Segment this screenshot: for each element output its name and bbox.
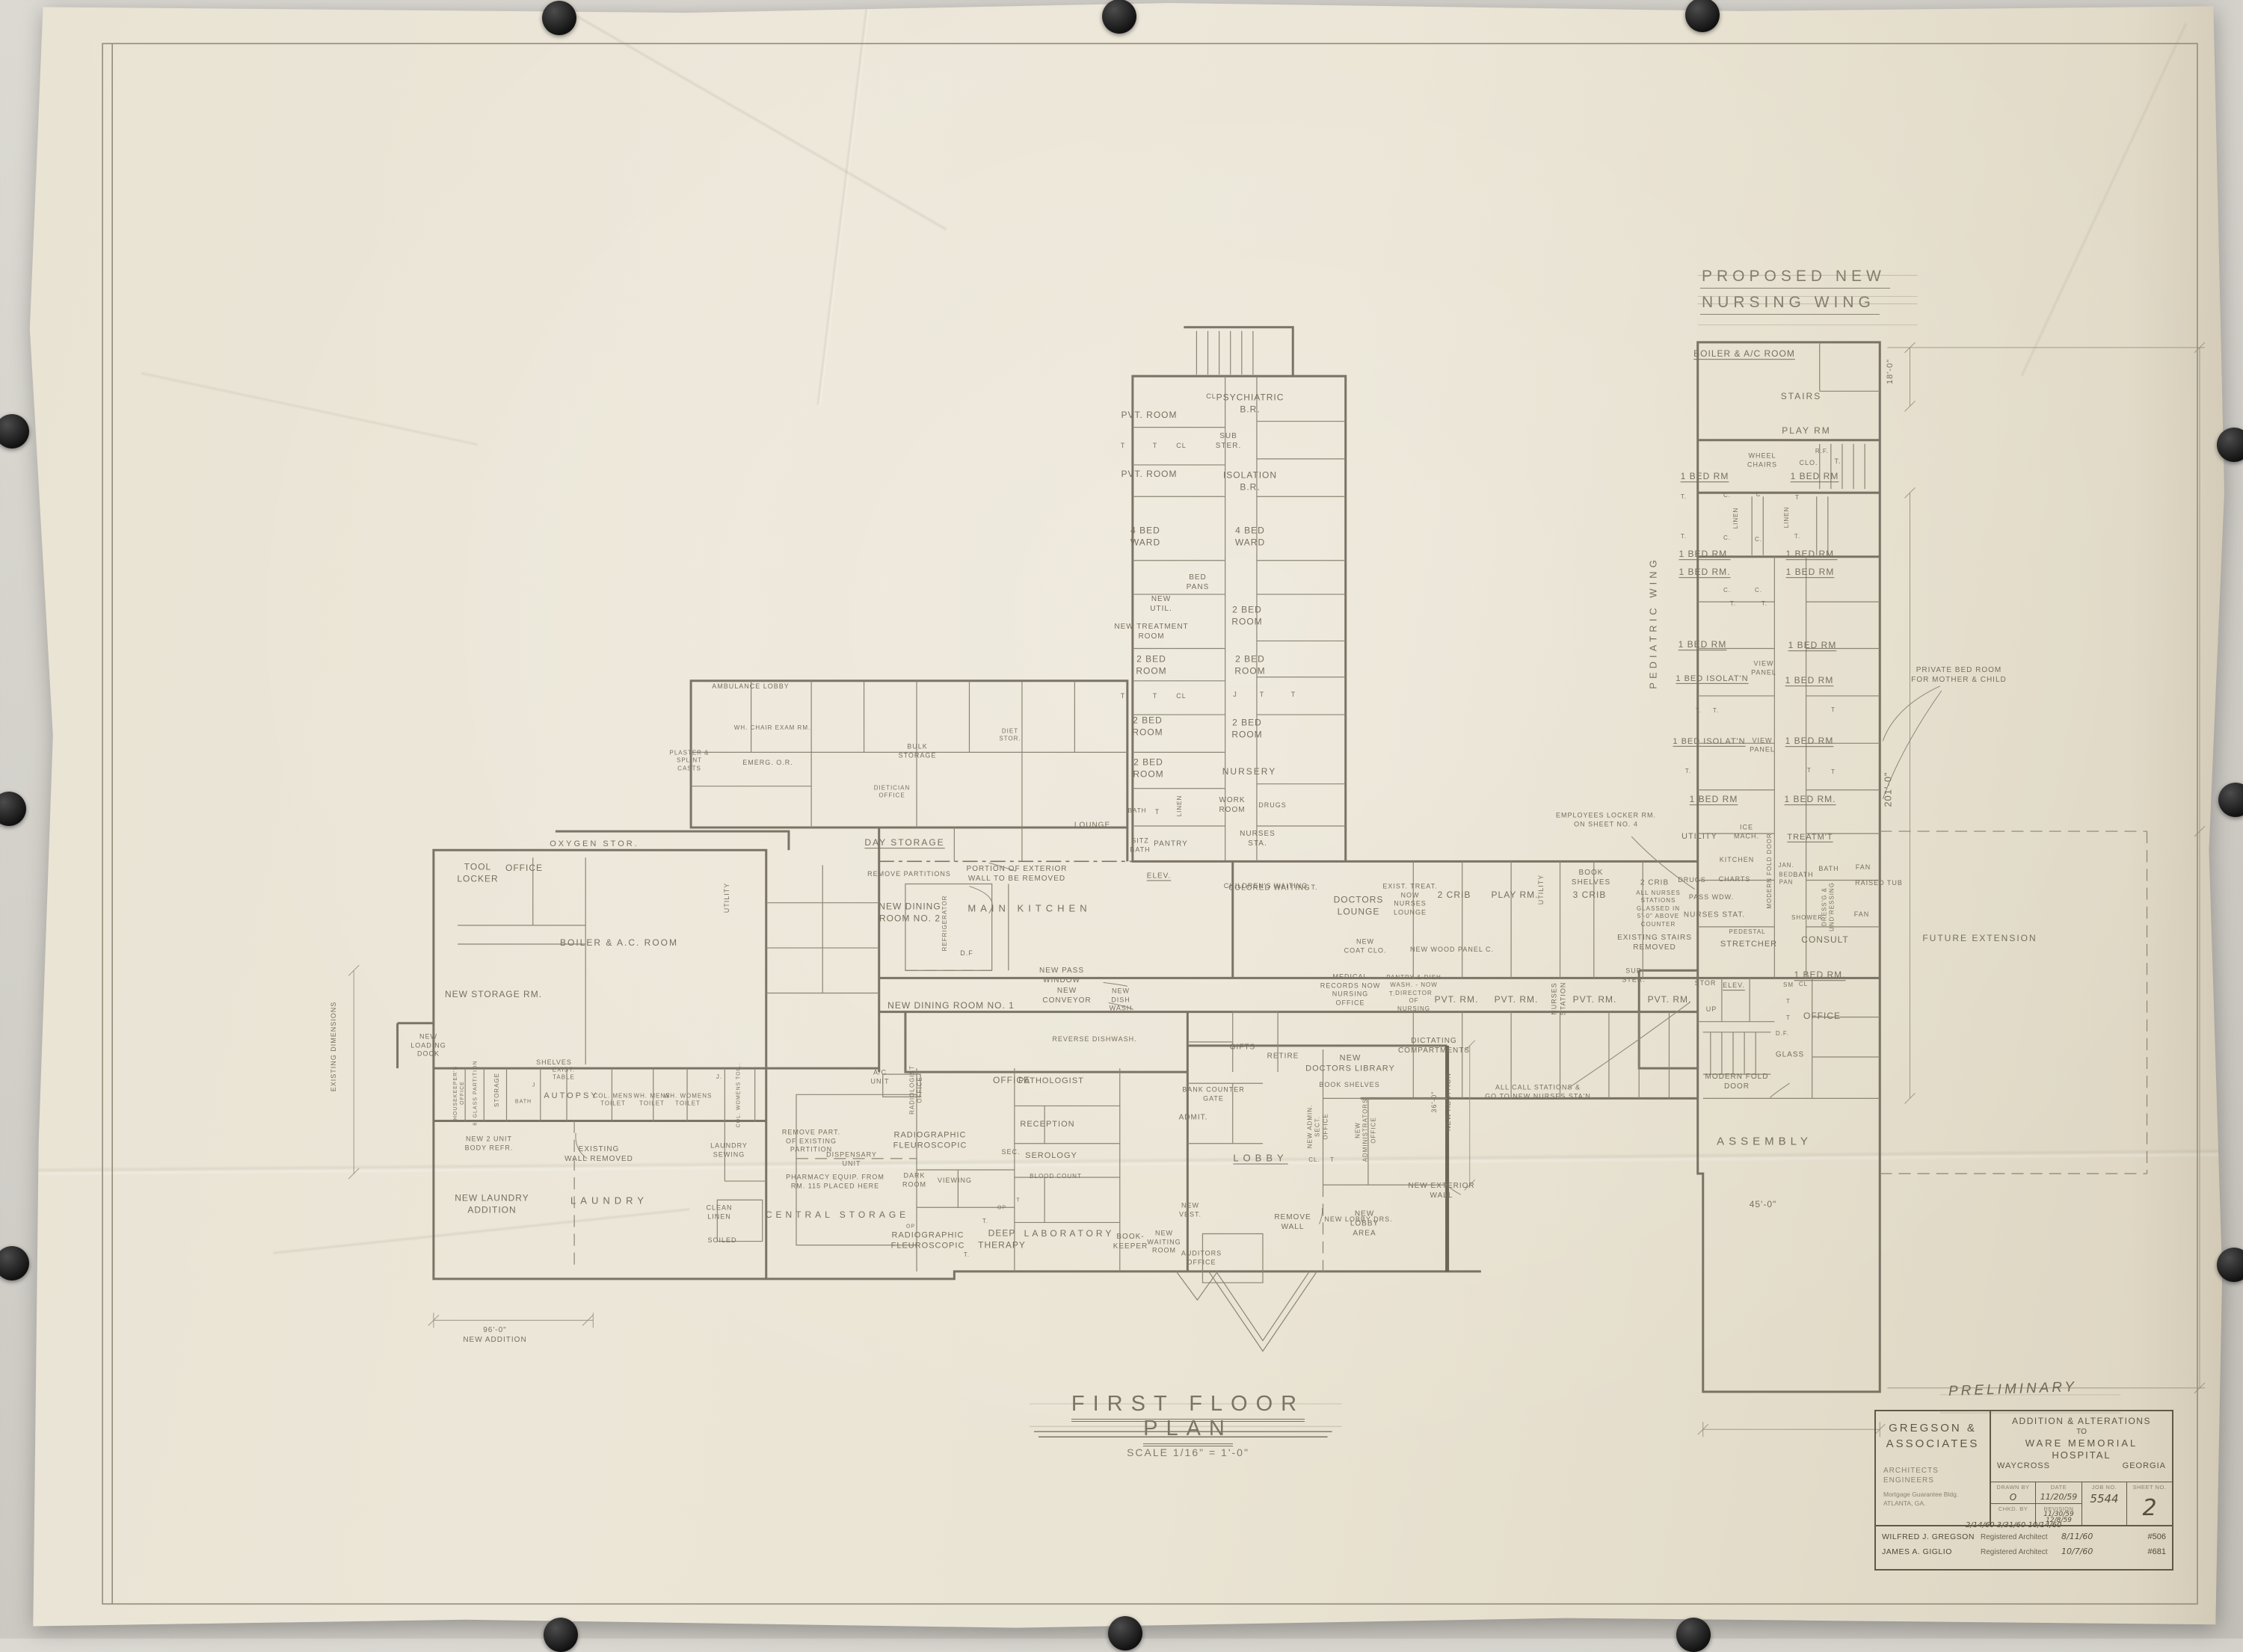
title-block: GREGSON & ASSOCIATES ARCHITECTS ENGINEER… — [1874, 1410, 2173, 1571]
wing-title: PROPOSED NEW NURSING WING — [1700, 266, 1890, 315]
room-label: T — [1121, 692, 1126, 701]
room-label: NEW ADMINISTRATORS OFFICE — [1354, 1099, 1377, 1162]
room-label: MAIN KITCHEN — [967, 903, 1091, 916]
room-label: T — [1121, 442, 1126, 451]
room-label: BULK STORAGE — [899, 742, 937, 759]
room-label: HOUSEKEEPER'S OFFICE — [452, 1066, 466, 1120]
room-label: 1 BED RM — [1785, 675, 1834, 687]
room-label: BATH — [1793, 871, 1813, 880]
architects-strip: 2/14/60 3/31/60 10/14/60 WILFRED J. GREG… — [1876, 1525, 2172, 1571]
room-label: WH. CHAIR EXAM RM. — [734, 724, 810, 732]
room-label: 1 BED RM — [1681, 471, 1729, 483]
annotation: NEW 2 UNIT BODY REFR. — [465, 1135, 514, 1152]
room-label: T. — [1834, 457, 1841, 466]
annotation: REMOVE PARTITIONS — [867, 870, 951, 879]
drawing-title-text: FIRST FLOOR PLAN — [1071, 1392, 1305, 1446]
annotation: REVERSE DISHWASH. — [1052, 1035, 1136, 1044]
room-label: CENTRAL STORAGE — [766, 1209, 909, 1221]
room-label: T — [1260, 691, 1265, 700]
room-label: CL — [1206, 392, 1216, 401]
room-label: LOUNGE — [1074, 821, 1110, 830]
drawn-by-value: O — [1991, 1492, 2035, 1502]
room-label: BATH — [1128, 807, 1147, 815]
architect-row-1: WILFRED J. GREGSON Registered Architect … — [1882, 1532, 2166, 1541]
dimension-label: 36'-0" — [1430, 1091, 1439, 1113]
room-label: PLAY RM. — [1492, 890, 1539, 901]
room-label: OP — [997, 1204, 1006, 1211]
room-label: CL — [1176, 692, 1187, 701]
annotation: MODERN FOLD DOOR — [1705, 1072, 1769, 1091]
room-label: 2 BED ROOM — [1136, 653, 1166, 676]
annotation: EMPLOYEES LOCKER RM. ON SHEET NO. 4 — [1556, 811, 1656, 828]
architect1-title: Registered Architect — [1981, 1533, 2061, 1541]
room-label: SUB STER. — [1216, 431, 1241, 451]
room-label: T. — [982, 1218, 988, 1225]
room-label: BLOOD COUNT — [1030, 1173, 1082, 1180]
room-label: CL. — [1308, 1156, 1320, 1164]
annotation: 6' GLASS PARTITION — [472, 1060, 479, 1125]
architect-row-2: JAMES A. GIGLIO Registered Architect 10/… — [1882, 1547, 2166, 1556]
dimension-label: 201'-0" — [1883, 771, 1895, 807]
room-label: CHARTS — [1719, 875, 1751, 884]
room-label: BATH — [515, 1098, 532, 1105]
room-label: BED PAN — [1779, 872, 1793, 887]
annotation: NEW PASS WINDOW — [1039, 966, 1084, 985]
firm-role2: ENGINEERS — [1883, 1476, 1990, 1485]
project-line4: HOSPITAL — [1991, 1449, 2172, 1461]
room-label: STAIRS — [1781, 391, 1821, 403]
room-label: T — [1831, 706, 1836, 714]
room-label: 1 BED RM — [1785, 736, 1834, 748]
room-label: T. — [1762, 600, 1767, 608]
project-line1: ADDITION & ALTERATIONS — [1991, 1416, 2172, 1426]
wing-title-line2: NURSING WING — [1700, 292, 1880, 315]
room-label: DEEP THERAPY — [978, 1227, 1026, 1251]
room-label: PVT. RM. — [1435, 994, 1479, 1006]
room-label: CHILDREN'S WAITING — [1224, 882, 1308, 891]
room-label: UTILITY — [1682, 831, 1717, 842]
annotation: NEW LOBBY DRS. — [1324, 1215, 1392, 1224]
annotation: BANK COUNTER GATE — [1182, 1085, 1245, 1103]
room-label: ADMIT. — [1179, 1113, 1208, 1123]
wing-title-line1: PROPOSED NEW — [1700, 266, 1890, 289]
room-label: DIETICIAN OFFICE — [874, 785, 911, 801]
room-label: NURSES STA. — [1240, 829, 1276, 848]
date-label: DATE — [2036, 1484, 2082, 1491]
room-label: 2 CRIB — [1640, 878, 1669, 888]
room-label: PLAY RM — [1782, 425, 1831, 437]
room-label: T — [1786, 998, 1791, 1005]
date-value: 11/20/59 — [2036, 1492, 2082, 1502]
room-label: SHOWER — [1791, 914, 1823, 922]
room-label: DRESS'G & UND'RESSING — [1821, 882, 1837, 931]
room-label: NEW VEST. — [1179, 1201, 1202, 1218]
drawing-title: FIRST FLOOR PLAN SCALE 1/16" = 1'-0" — [1027, 1392, 1349, 1458]
job-label: JOB NO. — [2082, 1484, 2126, 1491]
room-label: PLASTER & SPLINT CASTS — [669, 749, 709, 772]
room-label: T. — [1311, 884, 1317, 893]
annotation: PRIVATE BED ROOM FOR MOTHER & CHILD — [1911, 665, 2006, 685]
room-label: BOILER & A/C ROOM — [1693, 348, 1795, 360]
room-label: C. — [1755, 587, 1762, 594]
room-label: JAN. — [1778, 862, 1794, 869]
room-label: 1 BED RM. — [1785, 549, 1837, 561]
room-label: DIET STOR. — [999, 728, 1021, 744]
room-label: PVT. RM. — [1573, 994, 1617, 1006]
room-label: D.F — [960, 949, 973, 958]
room-label: 1 BED RM — [1791, 471, 1839, 483]
room-label: NURSERY — [1222, 766, 1276, 778]
room-label: LINEN — [1176, 795, 1184, 817]
room-label: UP — [1706, 1005, 1717, 1014]
chkd-by-label: CHKD. BY — [1991, 1505, 2035, 1512]
room-label: SM — [1783, 981, 1794, 989]
room-label: LINEN — [1732, 508, 1740, 529]
room-label: 2 BED ROOM — [1132, 715, 1163, 738]
room-label: 1 BED RM — [1690, 794, 1738, 806]
room-label: DOCTORS LOUNGE — [1334, 894, 1384, 917]
annotation: EXISTING WALL REMOVED — [564, 1144, 633, 1164]
room-label: TREATM'T — [1787, 832, 1833, 842]
room-label: T — [1291, 691, 1296, 700]
annotation: DICTATING COMPARTMENTS — [1398, 1036, 1470, 1055]
room-label: WHEEL CHAIRS — [1747, 451, 1777, 469]
room-label: 2 BED ROOM — [1234, 653, 1265, 676]
room-label: BOILER & A.C. ROOM — [560, 937, 678, 949]
sheet-cell: SHEET NO. 2 — [2127, 1482, 2172, 1526]
room-label: CL — [1799, 981, 1808, 988]
room-label: T — [1786, 1014, 1791, 1022]
job-value: 5544 — [2082, 1492, 2126, 1505]
room-label: PVT. RM. — [1648, 994, 1692, 1006]
firm-address2: ATLANTA, GA. — [1883, 1500, 1990, 1507]
room-label: PANTRY — [1154, 839, 1188, 849]
room-label: SEROLOGY — [1025, 1150, 1077, 1161]
project-panel: ADDITION & ALTERATIONS TO WARE MEMORIAL … — [1991, 1411, 2172, 1482]
room-label: 3 CRIB — [1573, 890, 1607, 901]
drawn-by-label: DRAWN BY — [1991, 1484, 2035, 1491]
room-label: BOOK- KEEPER — [1113, 1232, 1148, 1251]
room-label: CLO. — [1799, 459, 1818, 468]
architect2-name: JAMES A. GIGLIO — [1882, 1547, 1981, 1556]
annotation: BOOK SHELVES — [1319, 1081, 1379, 1090]
room-label: MEDICAL RECORDS NOW NURSING OFFICE — [1320, 973, 1381, 1008]
room-label: 2 BED ROOM — [1133, 756, 1163, 780]
room-label: NEW TREATMENT ROOM — [1114, 622, 1188, 641]
architect1-number: #506 — [2148, 1532, 2166, 1541]
project-line3: WARE MEMORIAL — [1991, 1437, 2172, 1449]
dimension-label: 45'-0" — [1750, 1199, 1777, 1211]
room-label: DISPENSARY UNIT — [826, 1150, 877, 1168]
room-label: T. — [1713, 707, 1719, 715]
room-label: C — [1756, 491, 1762, 499]
annotation: RAISED TUB — [1855, 879, 1903, 888]
room-label: 1 BED RM. — [1679, 567, 1730, 579]
room-label: LABORATORY — [1024, 1228, 1115, 1240]
room-label: STRETCHER — [1720, 939, 1777, 949]
room-label: C. — [1723, 534, 1731, 542]
room-label: NEW ADMIN. SECT. OFFICE — [1306, 1105, 1329, 1148]
annotation: NEW WOOD PANEL C. — [1410, 946, 1494, 955]
room-label: 1 BED RM — [1788, 640, 1837, 652]
room-label: AMBULANCE LOBBY — [712, 682, 790, 691]
room-label: 4 BED WARD — [1235, 525, 1265, 548]
annotation: EXISTING STAIRS REMOVED — [1617, 933, 1692, 952]
annotation: EXIST. TABLE — [553, 1067, 575, 1082]
room-label: ICE MACH. — [1734, 823, 1759, 840]
room-label: T — [1831, 768, 1836, 776]
room-label: VIEW PANEL — [1750, 736, 1775, 753]
title-block-fields: DRAWN BY O CHKD. BY DATE 11/20/59 REVISI… — [1991, 1482, 2172, 1526]
room-label: T. — [1681, 533, 1687, 540]
room-label: LAUNDRY — [570, 1195, 648, 1208]
room-label: T — [1016, 1197, 1020, 1203]
plan-labels-layer: PVT. ROOMCLPSYCHIATRIC B.R.SUB STER.TTCL… — [25, 3, 2227, 1631]
room-label: WH. WOMENS TOILET — [664, 1093, 713, 1109]
room-label: NEW STORAGE RM. — [445, 989, 542, 1001]
dimension-label: NEW ADDITION — [1444, 1073, 1453, 1131]
room-label: NEW DISH WASH — [1110, 987, 1133, 1013]
room-label: 2 CRIB — [1438, 890, 1471, 901]
firm-name-line1: GREGSON & — [1876, 1422, 1990, 1434]
firm-address1: Mortgage Guarantee Bldg. — [1883, 1491, 1990, 1498]
project-state: GEORGIA — [2123, 1461, 2166, 1470]
room-label: 4 BED WARD — [1130, 525, 1160, 548]
annotation: NEW CONVEYOR — [1042, 986, 1091, 1005]
room-label: GIFTS — [1230, 1043, 1255, 1052]
room-label: NURSES STATION — [1550, 982, 1567, 1016]
room-label: 2 BED ROOM — [1231, 604, 1262, 627]
room-label: CLEAN LINEN — [706, 1203, 732, 1221]
room-label: T — [1807, 767, 1812, 774]
room-label: PASS WDW. — [1689, 893, 1734, 902]
room-label: OFFICE — [1803, 1011, 1841, 1023]
sheet-wrap: PVT. ROOMCLPSYCHIATRIC B.R.SUB STER.TTCL… — [0, 0, 2243, 1639]
annotation: FAN — [1856, 863, 1871, 872]
room-label: ISOLATION B.R. — [1223, 469, 1277, 493]
room-label: LOBBY — [1233, 1153, 1287, 1165]
room-label: UTILITY — [723, 883, 732, 913]
dimension-label: EXISTING DIMENSIONS — [330, 1002, 339, 1092]
room-label: 1 BED RM. — [1784, 794, 1836, 806]
room-label: BOOK SHELVES — [1572, 868, 1610, 887]
room-label: NEW UTIL. — [1150, 594, 1172, 614]
sheet-number: 2 — [2127, 1495, 2172, 1521]
room-label: OXYGEN STOR. — [550, 839, 639, 849]
room-label: DRUGS — [1678, 876, 1706, 885]
annotation: ALL CALL STATIONS & GO TO NEW NURSES STA… — [1485, 1083, 1591, 1100]
job-cell: JOB NO. 5544 — [2082, 1482, 2127, 1526]
room-label: 1 BED RM — [1679, 639, 1727, 651]
room-label: T — [1155, 808, 1160, 817]
room-label: NEW DINING ROOM NO. 2 — [879, 901, 941, 924]
room-label: PSYCHIATRIC B.R. — [1216, 392, 1284, 415]
room-label: T. — [1730, 600, 1736, 608]
drawing-sheet: PVT. ROOMCLPSYCHIATRIC B.R.SUB STER.TTCL… — [25, 3, 2227, 1631]
project-line2: TO — [1991, 1428, 2172, 1436]
room-label: SITZ BATH — [1130, 836, 1150, 854]
dimension-label: 18'-0" — [1885, 359, 1895, 384]
room-label: LAUNDRY SEWING — [710, 1141, 748, 1159]
room-label: T — [1153, 442, 1158, 451]
photo-background: PVT. ROOMCLPSYCHIATRIC B.R.SUB STER.TTCL… — [0, 0, 2243, 1639]
dimension-label: 96'-0" NEW ADDITION — [463, 1325, 526, 1345]
room-label: NEW LAUNDRY ADDITION — [455, 1192, 529, 1215]
room-label: RADIOGRAPHIC FLEUROSCOPIC — [891, 1230, 965, 1252]
room-label: NEW COAT CLO. — [1344, 937, 1387, 955]
annotation: PHARMACY EQUIP. FROM RM. 115 PLACED HERE — [786, 1173, 884, 1190]
room-label: R.F. — [1815, 448, 1829, 455]
room-label: BED PANS — [1187, 573, 1210, 592]
room-label: SOILED — [707, 1236, 736, 1245]
room-label: STOR — [1695, 979, 1717, 988]
architect2-number: #681 — [2148, 1547, 2166, 1556]
room-label: KITCHEN — [1720, 856, 1755, 865]
room-label: EXIST. TREAT. NOW NURSES LOUNGE — [1382, 883, 1437, 918]
room-label: 2 BED ROOM — [1231, 717, 1262, 740]
room-label: C. — [1723, 492, 1731, 499]
room-label: NEW WAITING ROOM — [1147, 1229, 1181, 1255]
room-label: T — [1153, 692, 1158, 701]
room-label: DAY STORAGE — [864, 837, 944, 849]
room-label: J. — [716, 1073, 722, 1081]
room-label: DARK ROOM — [902, 1171, 926, 1189]
room-label: NEW DOCTORS LIBRARY — [1305, 1053, 1395, 1075]
room-label: VIEW PANEL — [1751, 659, 1776, 676]
room-label: TOOL LOCKER — [457, 861, 498, 884]
room-label: COL. WOMENS TOIL. — [735, 1063, 742, 1128]
room-label: AUTOPSY — [544, 1091, 598, 1101]
drawn-by-cell: DRAWN BY O CHKD. BY — [1991, 1482, 2036, 1526]
annotation: GLASS — [1776, 1050, 1804, 1060]
room-label: 1 BED ISOLAT'N — [1676, 674, 1748, 684]
room-label: T. — [1389, 990, 1395, 998]
room-label: PEDESTAL — [1729, 928, 1765, 936]
room-label: SEC. — [1001, 1148, 1020, 1157]
room-label: PVT. RM. — [1495, 994, 1539, 1006]
annotation: FUTURE EXTENSION — [1922, 933, 2037, 945]
room-label: T. — [964, 1251, 970, 1259]
annotation: NEW EXTERIOR WALL — [1408, 1181, 1474, 1201]
room-label: COL. MENS TOILET — [593, 1093, 633, 1109]
sheet-label: SHEET NO. — [2127, 1484, 2172, 1491]
room-label: 1 BED RM. — [1794, 970, 1845, 981]
room-label: AUDITORS OFFICE — [1181, 1249, 1222, 1266]
room-label: 1 BED RM. — [1679, 549, 1730, 561]
annotation: ALL NURSES STATIONS GLASSED IN 5'-0" ABO… — [1636, 890, 1681, 928]
room-label: T. — [1681, 493, 1687, 501]
room-label: 1 BED ISOLAT'N — [1673, 736, 1745, 747]
room-label: T — [1795, 494, 1800, 502]
date-cell: DATE 11/20/59 REVISION 11/30/59 12/8/59 — [2036, 1482, 2082, 1526]
architect2-title: Registered Architect — [1981, 1548, 2061, 1556]
room-label: D.F. — [1776, 1030, 1789, 1038]
room-label: PVT. ROOM — [1121, 410, 1177, 422]
room-label: RETIRE — [1267, 1052, 1299, 1061]
room-label: BATH — [1818, 865, 1839, 874]
room-label: STORAGE — [493, 1073, 501, 1107]
room-label: CONSULT — [1801, 934, 1848, 946]
room-label: WORK ROOM — [1219, 795, 1245, 815]
room-label: NEW DINING ROOM NO. 1 — [887, 1000, 1015, 1012]
room-label: REFRIGERATOR — [941, 896, 949, 952]
room-label: NEW LOADING DOCK — [410, 1032, 446, 1058]
project-city: WAYCROSS — [1997, 1461, 2050, 1470]
room-label: J — [532, 1082, 536, 1088]
room-label: A/C UNIT — [871, 1068, 890, 1085]
room-label: NURSES STAT. — [1684, 910, 1745, 920]
room-label: ASSEMBLY — [1717, 1134, 1812, 1149]
room-label: ELEV. — [1723, 981, 1745, 990]
room-label: RECEPTION — [1020, 1119, 1074, 1129]
room-label: PATHOLOGIST — [1018, 1076, 1084, 1086]
architect1-date: 8/11/60 — [2061, 1532, 2114, 1541]
room-label: EMERG. O.R. — [742, 759, 793, 768]
room-label: UTILITY — [1537, 875, 1546, 905]
firm-role1: ARCHITECTS — [1883, 1467, 1990, 1475]
room-label: 1 BED RM — [1786, 567, 1835, 579]
room-label: C. — [1755, 536, 1762, 543]
room-label: T. — [1696, 707, 1702, 715]
room-label: OFFICE — [505, 863, 543, 875]
room-label: OP — [906, 1223, 915, 1230]
annotation: REMOVE WALL — [1274, 1212, 1311, 1232]
room-label: T. — [1685, 768, 1691, 775]
room-label: PVT. ROOM — [1121, 469, 1177, 481]
architect2-date: 10/7/60 — [2061, 1547, 2114, 1556]
room-label: DRUGS — [1258, 801, 1287, 810]
room-label: J — [1233, 691, 1237, 700]
room-label: RADIOGRAPHIC FLEUROSCOPIC — [893, 1130, 967, 1152]
room-label: SUB STER. — [1622, 967, 1646, 984]
room-label: VIEWING — [938, 1177, 972, 1186]
room-label: ELEV. — [1147, 872, 1171, 881]
annotation: PORTION OF EXTERIOR WALL TO BE REMOVED — [967, 864, 1068, 884]
firm-name-line2: ASSOCIATES — [1876, 1437, 1990, 1450]
annotation: FAN — [1854, 910, 1870, 919]
room-label: LINEN — [1783, 507, 1791, 528]
room-label: C. — [1723, 587, 1731, 594]
firm-panel: GREGSON & ASSOCIATES ARCHITECTS ENGINEER… — [1876, 1411, 1991, 1525]
wing-name: PEDIATRIC WING — [1648, 556, 1661, 688]
extra-revision-dates: 2/14/60 3/31/60 10/14/60 — [1966, 1521, 2061, 1529]
room-label: T. — [1794, 533, 1800, 540]
room-label: RADIOLOGIST OFFICE — [909, 1065, 925, 1115]
annotation: MODERN FOLD DOOR — [1766, 833, 1773, 908]
room-label: CL — [1176, 442, 1187, 451]
drawing-scale: SCALE 1/16" = 1'-0" — [1027, 1446, 1349, 1458]
room-label: T — [1330, 1156, 1335, 1164]
architect1-name: WILFRED J. GREGSON — [1882, 1532, 1981, 1541]
